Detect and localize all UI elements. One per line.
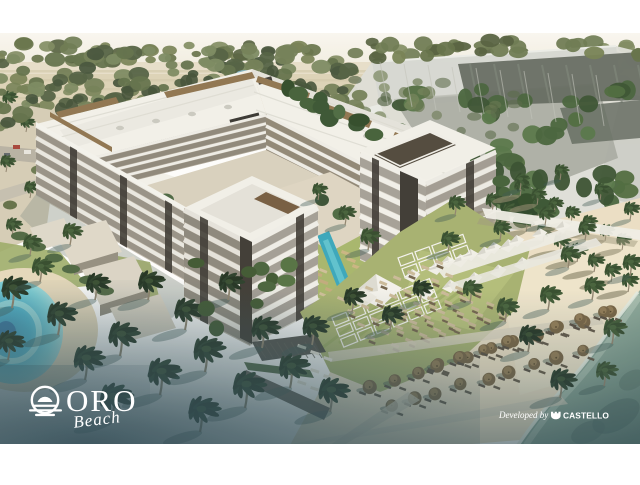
svg-text:Developed by: Developed by: [498, 410, 548, 420]
svg-text:CASTELLO: CASTELLO: [563, 411, 609, 421]
